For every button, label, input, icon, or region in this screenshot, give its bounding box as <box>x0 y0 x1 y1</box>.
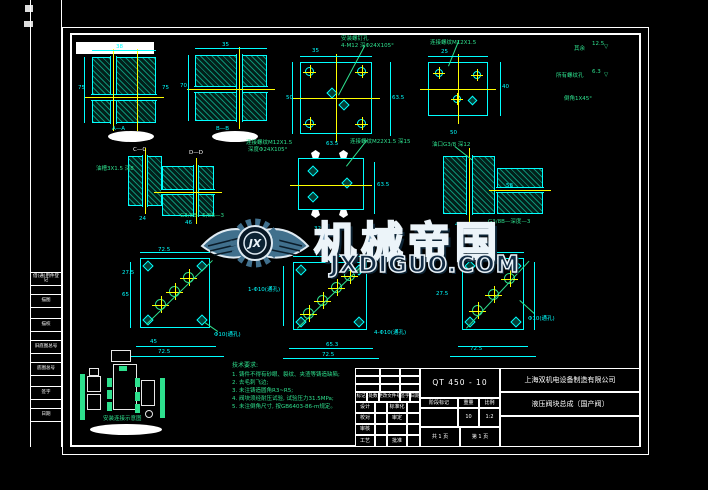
annotation-label: 其余 <box>574 46 585 52</box>
revision-header-sign: 签字 <box>400 392 410 402</box>
drawing-number-cell <box>500 416 640 447</box>
dimension-label: 1-Φ10(通孔) <box>248 287 280 293</box>
sign-audit: 审核 <box>355 424 375 435</box>
dimension-label: 4-Φ10(通孔) <box>374 330 406 336</box>
sign-blank2 <box>387 424 407 435</box>
dimension-label: 65.3 <box>326 342 338 348</box>
dimension-label: 65 <box>122 292 129 298</box>
annotation-label: 连接螺纹M22X1.5 深15 <box>350 139 411 145</box>
dimension-label: 50 <box>450 130 457 136</box>
dimension-label: 50 <box>286 95 293 101</box>
dimension-label: 63.5 <box>326 141 338 147</box>
dimension-label: 38 <box>116 44 123 50</box>
section-label: C—C <box>133 147 146 153</box>
annotation-label: 4-M12 深Φ24X105° <box>341 43 394 49</box>
dimension-label: 63.5 <box>392 95 404 101</box>
sign-design: 设计 <box>355 402 375 413</box>
watermark-logo: JX <box>196 206 314 280</box>
sign-process: 工艺 <box>355 435 375 447</box>
dimension-label: Φ10(通孔) <box>528 316 555 322</box>
weight-label: 重量 <box>458 398 479 408</box>
part-name: 液压阀块总成〔国产阀〕 <box>500 392 640 416</box>
annotation-label: 油槽3X1.5 深8 <box>96 166 134 172</box>
sign-check: 校对 <box>355 413 375 424</box>
dimension-label: 63.5 <box>377 182 389 188</box>
dimension-label: 72.5 <box>158 247 170 253</box>
dimension-label: 35 <box>222 42 229 48</box>
dimension-label: B—B <box>216 126 229 132</box>
sign-approve: 批准 <box>387 435 407 447</box>
watermark-logo-initials: JX <box>247 237 262 250</box>
sign-blank <box>375 413 387 424</box>
dimension-label: 72.5 <box>158 349 170 355</box>
weight-value: 10 <box>458 408 479 427</box>
dimension-label: 27.5 <box>436 291 448 297</box>
sign-blank <box>407 413 420 424</box>
annotation-label: 连接螺纹M12X1.5 <box>430 40 476 46</box>
stage-mark-label: 阶段标记 <box>420 398 458 408</box>
dimension-label: 35 <box>312 48 319 54</box>
dimension-label: 25 <box>441 49 448 55</box>
parts-cell <box>400 384 420 392</box>
scale-label: 比例 <box>479 398 500 408</box>
dimension-label: 75 <box>78 85 85 91</box>
parts-cell <box>355 376 380 384</box>
stage-mark-value <box>420 408 458 427</box>
dimension-label: 58 <box>506 183 513 189</box>
sheet-total: 共 1 页 <box>420 427 460 447</box>
dimension-label: A—A <box>112 126 125 132</box>
material-cell: QT 450 - 10 <box>420 368 500 398</box>
sign-blank <box>375 424 387 435</box>
scale-value: 1:2 <box>479 408 500 427</box>
parts-cell <box>380 384 400 392</box>
sign-approve-review: 审定 <box>387 413 407 424</box>
revision-header-docno: 更改文件号 <box>379 392 400 402</box>
dimension-label: 70 <box>180 83 187 89</box>
annotation-label: 安装连接示意图 <box>103 416 142 422</box>
section-label: D—D <box>189 150 203 156</box>
revision-header-date: 日期 <box>410 392 420 402</box>
annotation-label: 12.5 <box>592 41 604 47</box>
company-name: 上海双机电设备制造有限公司 <box>500 368 640 392</box>
dimension-label: 72.5 <box>322 352 334 358</box>
annotation-label: 深度Φ24X105° <box>248 147 287 153</box>
parts-cell <box>400 368 420 376</box>
sheet-number: 第 1 页 <box>460 427 500 447</box>
dimension-label: 46 <box>185 220 192 226</box>
annotation-label: 连接螺纹M12X1.5 <box>246 140 292 146</box>
sign-blank <box>407 402 420 413</box>
parts-cell <box>355 368 380 376</box>
watermark-url-text: JXDIGUO.COM <box>330 252 520 278</box>
dimension-label: 24 <box>139 216 146 222</box>
revision-header-mark: 标记 <box>355 392 367 402</box>
annotation-label: 所有螺纹孔 <box>556 73 584 79</box>
annotation-label: ▽ <box>604 44 608 50</box>
dimension-label: 75 <box>162 85 169 91</box>
annotation-label: 6.3 <box>592 69 601 75</box>
parts-cell <box>380 376 400 384</box>
parts-cell <box>380 368 400 376</box>
parts-cell <box>355 384 380 392</box>
dimension-label: Φ10(通孔) <box>214 332 241 338</box>
sign-blank <box>375 435 387 447</box>
sign-blank <box>407 424 420 435</box>
revision-header-count: 处数 <box>367 392 379 402</box>
dimension-label: 27.5 <box>122 270 134 276</box>
annotation-label: 安装螺钉孔 <box>341 36 369 42</box>
sign-blank <box>375 402 387 413</box>
sign-standardization: 标准化 <box>387 402 407 413</box>
sign-blank <box>407 435 420 447</box>
annotation-label: ▽ <box>604 72 608 78</box>
cad-drawing-canvas: 借(通)用件登记 描图 描校 旧底图总号 底图总号 签字 日期 <box>0 0 708 490</box>
dimension-label: 45 <box>150 339 157 345</box>
annotation-label: 油口G3/8 深12 <box>432 142 470 148</box>
parts-cell <box>400 376 420 384</box>
annotation-label: 倒角1X45° <box>564 96 592 102</box>
dimension-label: 72.5 <box>470 346 482 352</box>
dimension-label: 40 <box>502 84 509 90</box>
